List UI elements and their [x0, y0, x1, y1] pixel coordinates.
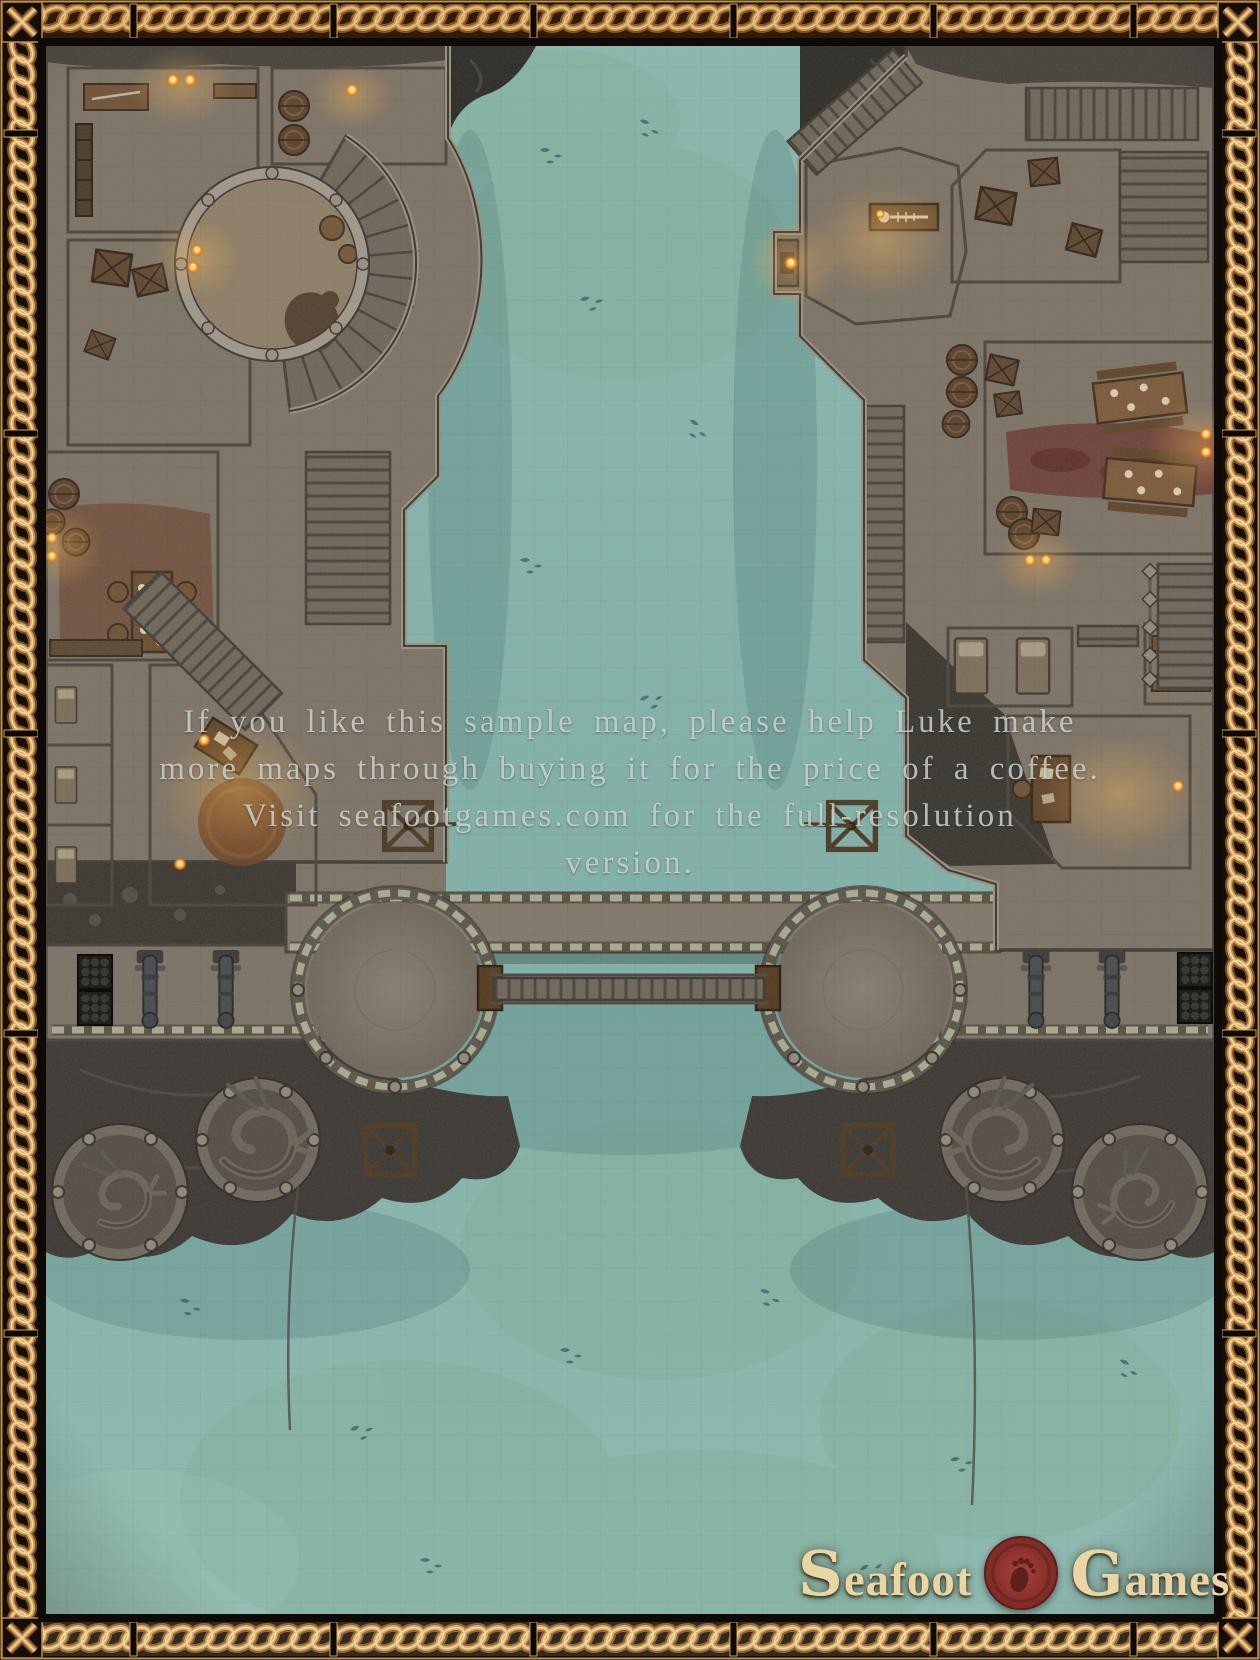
border-strip-right — [1222, 4, 1256, 1656]
watermark-line: more maps through buying it for the pric… — [60, 746, 1200, 793]
logo-word-seafoot: Seafoot — [798, 1537, 972, 1610]
publisher-logo: Seafoot Games — [798, 1534, 1230, 1612]
watermark-line: If you like this sample map, please help… — [60, 699, 1200, 746]
watermark-text: If you like this sample map, please help… — [60, 699, 1200, 887]
logo-word-games: Games — [1070, 1537, 1230, 1610]
border-strip-left — [4, 4, 38, 1656]
battle-map-page: If you like this sample map, please help… — [0, 0, 1260, 1660]
watermark-line: Visit seafootgames.com for the full-reso… — [60, 793, 1200, 840]
watermark-line: version. — [60, 840, 1200, 887]
footprint-wax-seal-icon — [982, 1534, 1060, 1612]
